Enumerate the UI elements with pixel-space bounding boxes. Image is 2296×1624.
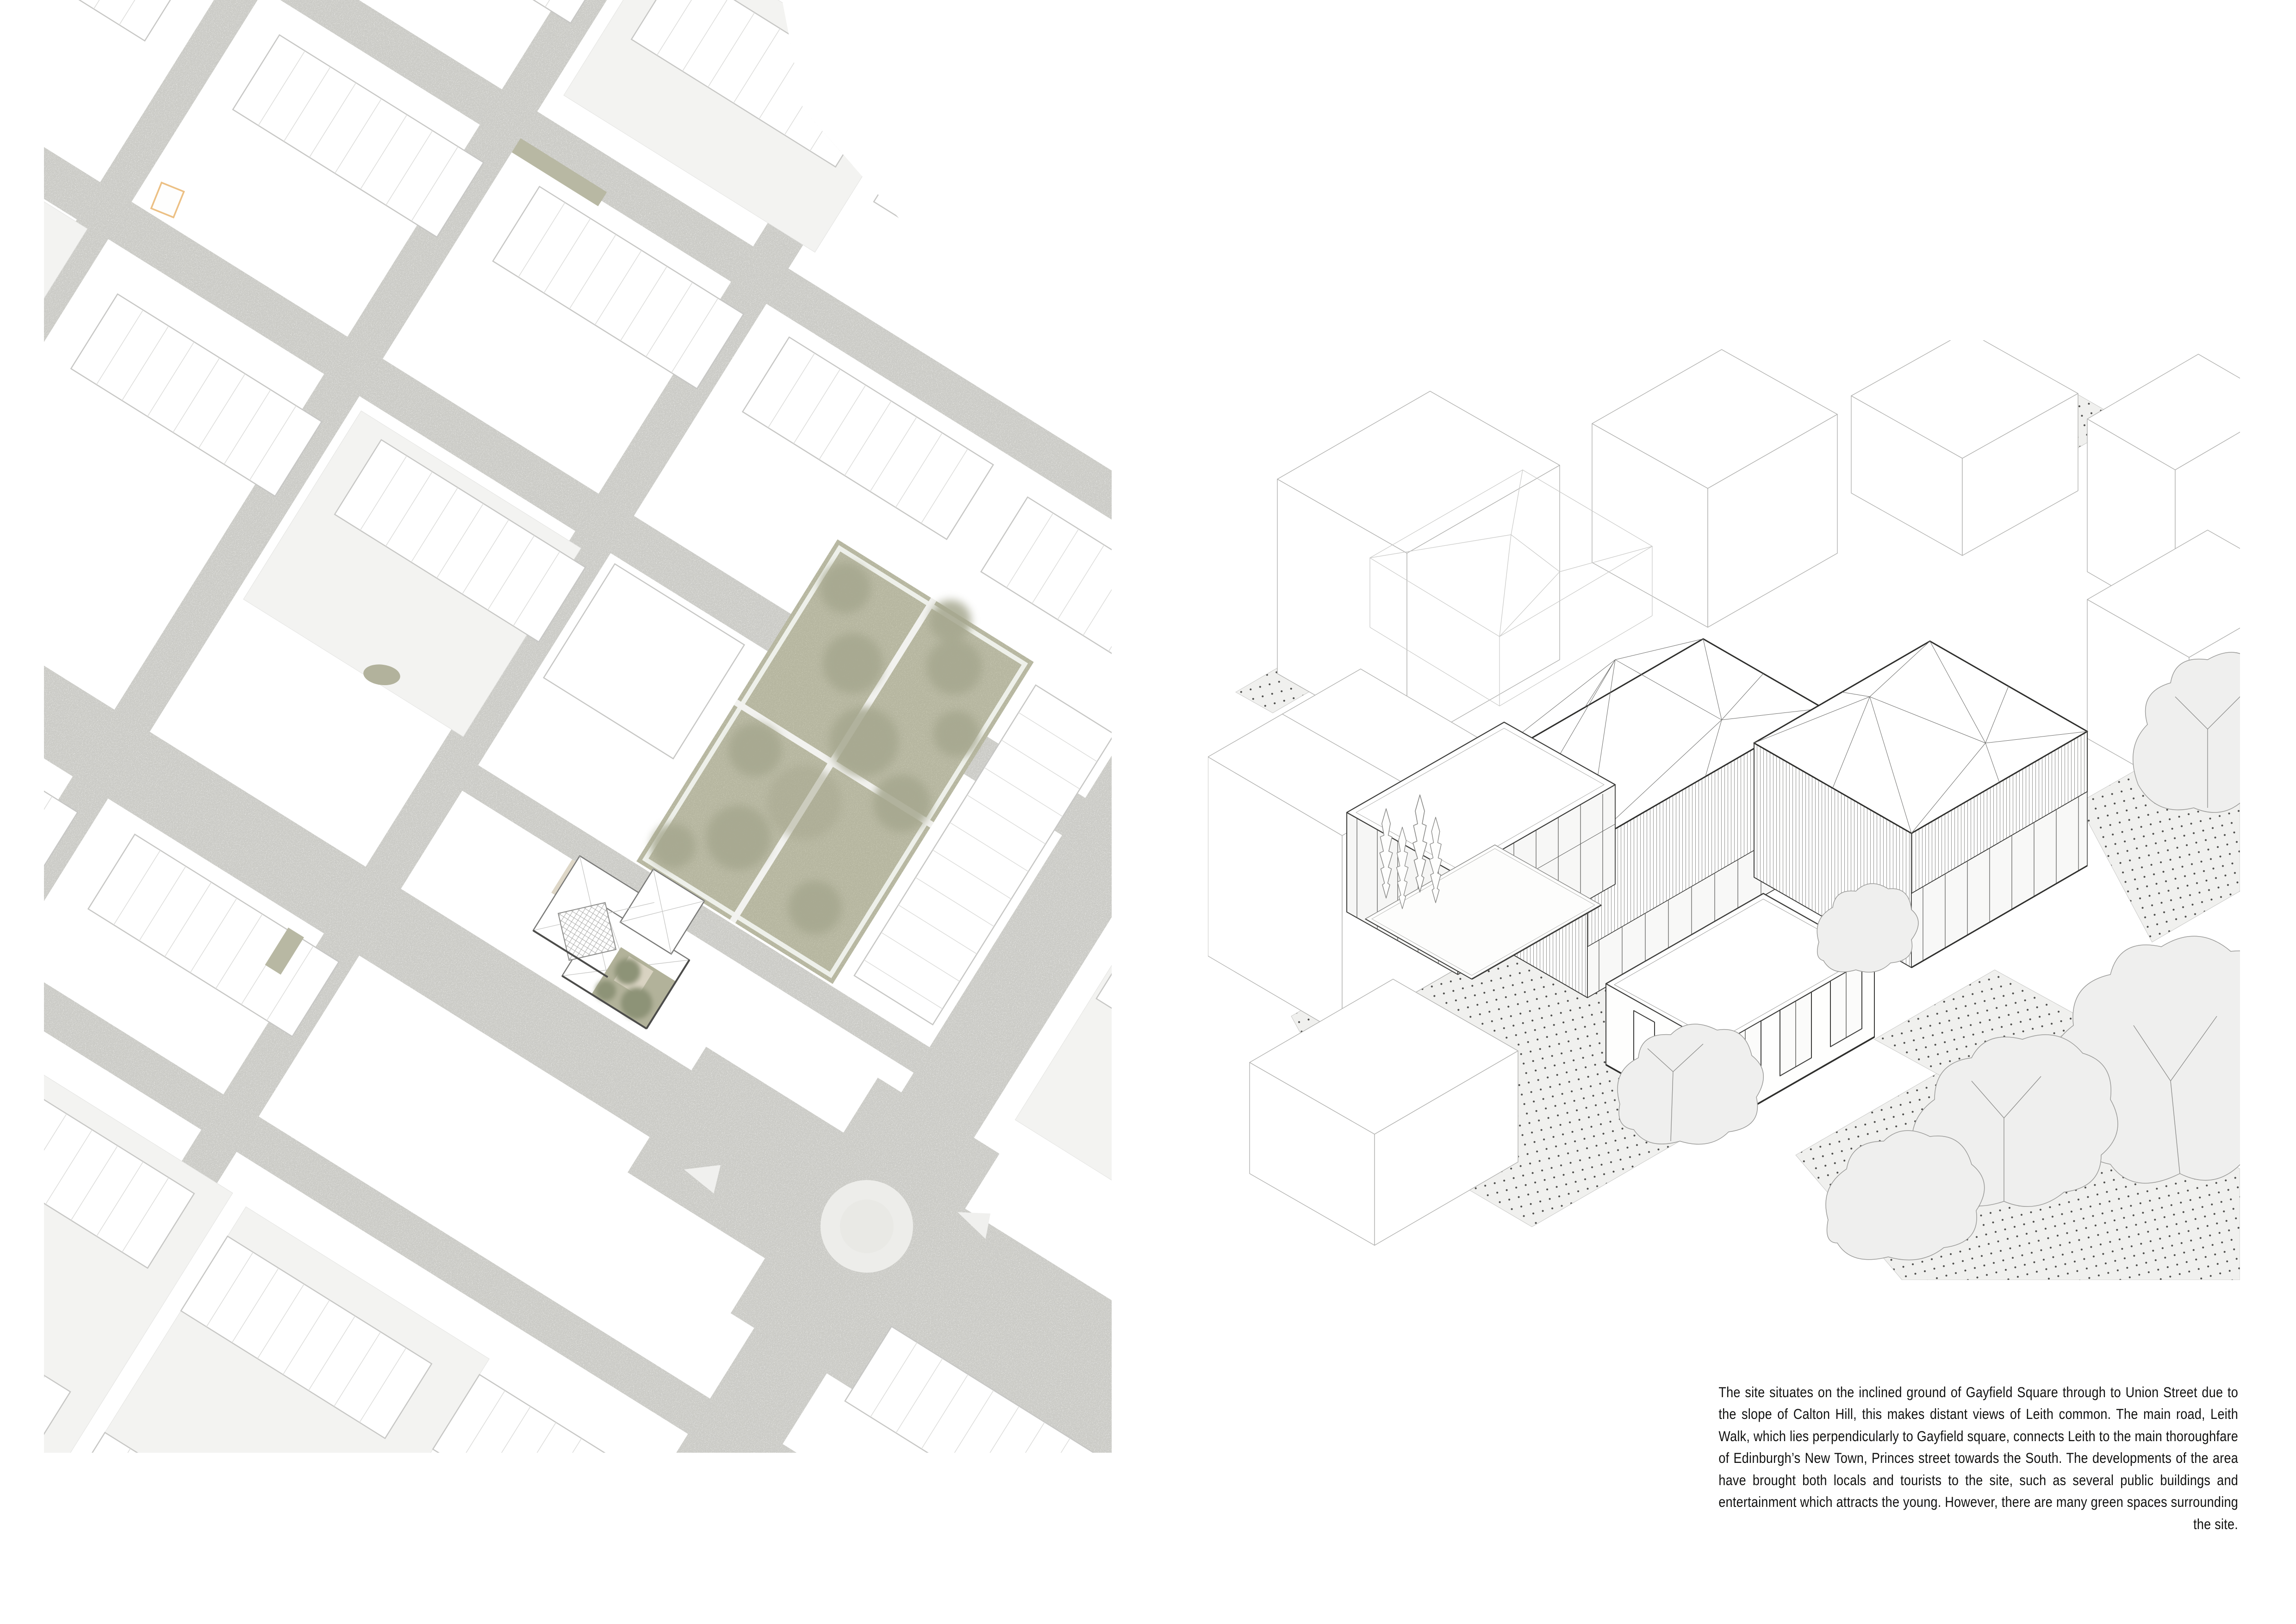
site-description: The site situates on the inclined ground…: [1718, 1381, 2238, 1536]
portfolio-sheet: The site situates on the inclined ground…: [0, 0, 2296, 1624]
axonometric-drawing: [1208, 340, 2240, 1280]
site-plan-drawing: [42, 0, 1115, 1454]
highlighted-parcel: [151, 182, 184, 217]
